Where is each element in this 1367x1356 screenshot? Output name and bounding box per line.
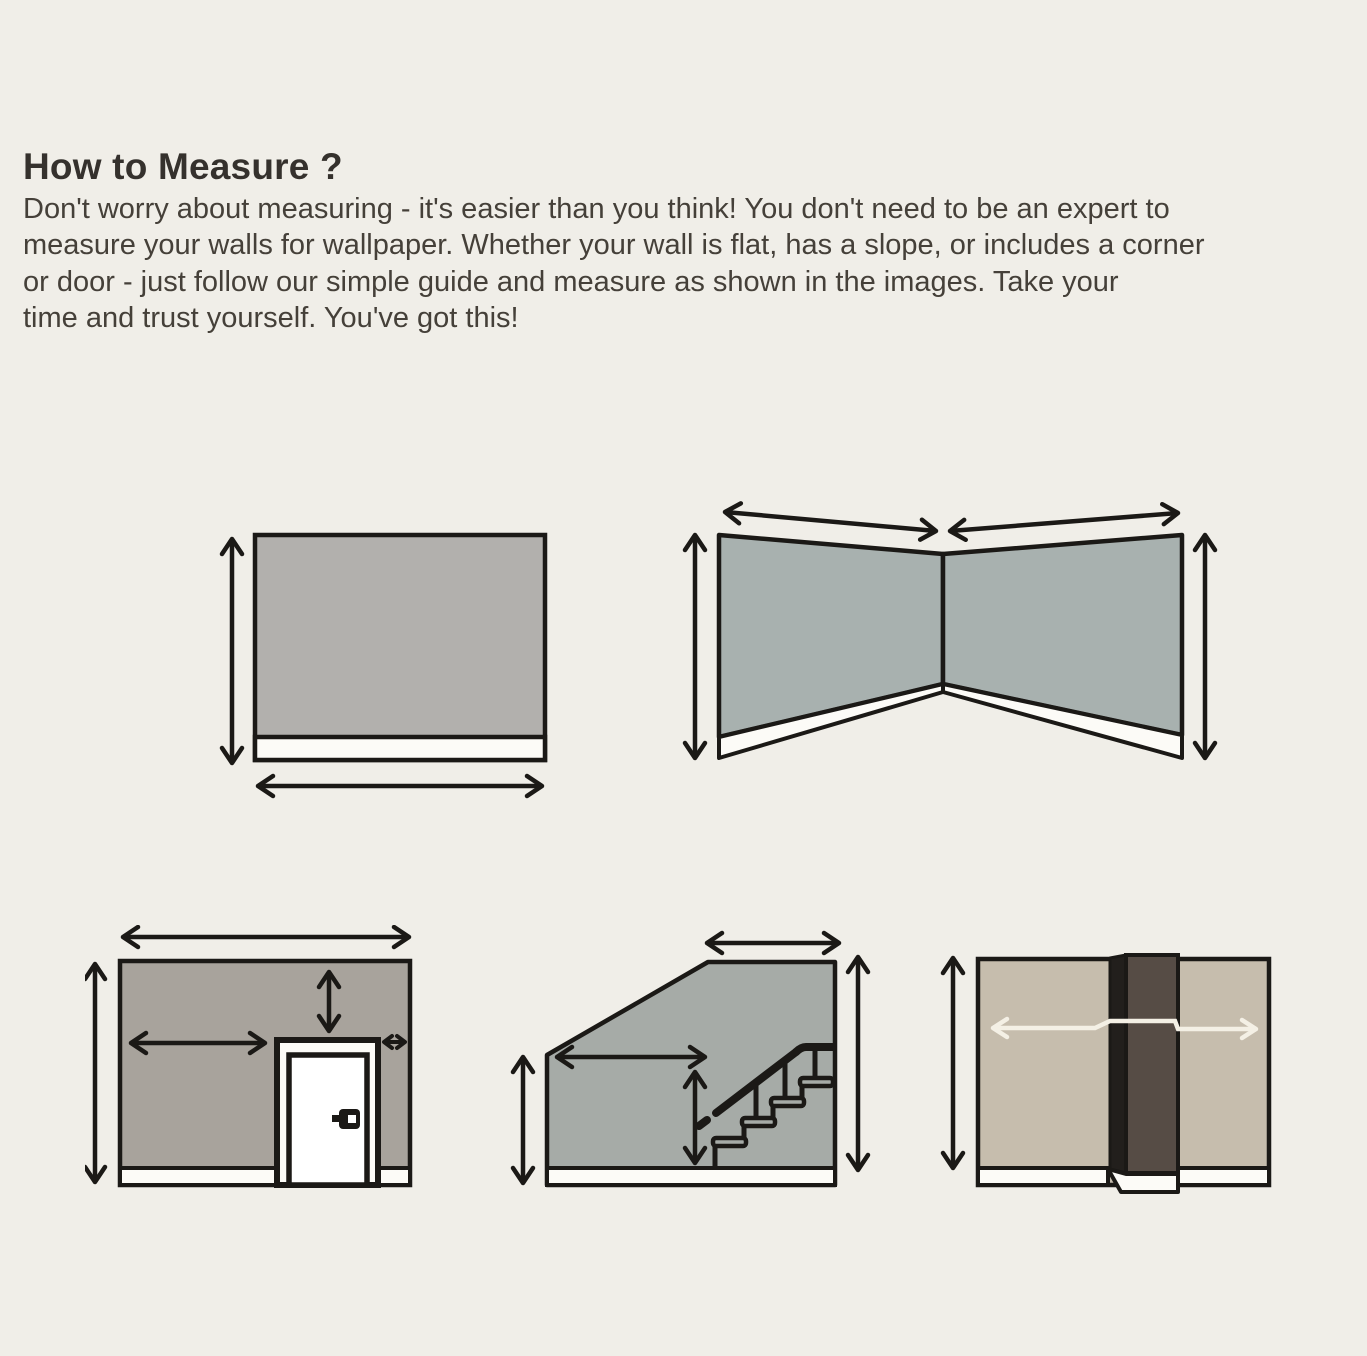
corner-wall-diagram xyxy=(675,495,1220,785)
column-front-face xyxy=(1126,955,1178,1173)
sloped-wall-shape xyxy=(547,962,835,1185)
sloped-wall-stairs-diagram xyxy=(505,930,880,1200)
baseboard xyxy=(547,1168,835,1185)
intro-line: Don't worry about measuring - it's easie… xyxy=(23,191,1204,227)
left-width-arrow-icon xyxy=(725,512,936,531)
baseboard-left xyxy=(978,1168,1108,1185)
wall-shape xyxy=(255,535,545,760)
flat-wall-diagram xyxy=(210,520,560,810)
wall-with-door-diagram xyxy=(85,925,425,1195)
page-title: How to Measure ? xyxy=(23,146,343,188)
how-to-measure-guide: How to Measure ? Don't worry about measu… xyxy=(0,0,1367,1356)
baseboard-right xyxy=(1178,1168,1269,1185)
column-icon xyxy=(1108,955,1178,1192)
right-wall-shape xyxy=(943,535,1182,735)
right-width-arrow-icon xyxy=(950,513,1178,531)
baseboard-left xyxy=(120,1168,277,1185)
intro-line: measure your walls for wallpaper. Whethe… xyxy=(23,227,1204,263)
wall-with-column-diagram xyxy=(930,940,1280,1210)
column-baseboard xyxy=(1108,1169,1178,1192)
left-wall-shape xyxy=(719,535,943,737)
baseboard-right xyxy=(378,1168,410,1185)
intro-line: or door - just follow our simple guide a… xyxy=(23,264,1204,300)
intro-paragraph: Don't worry about measuring - it's easie… xyxy=(23,191,1204,337)
intro-line: time and trust yourself. You've got this… xyxy=(23,300,1204,336)
baseboard xyxy=(255,737,545,760)
column-side-face xyxy=(1110,955,1126,1173)
